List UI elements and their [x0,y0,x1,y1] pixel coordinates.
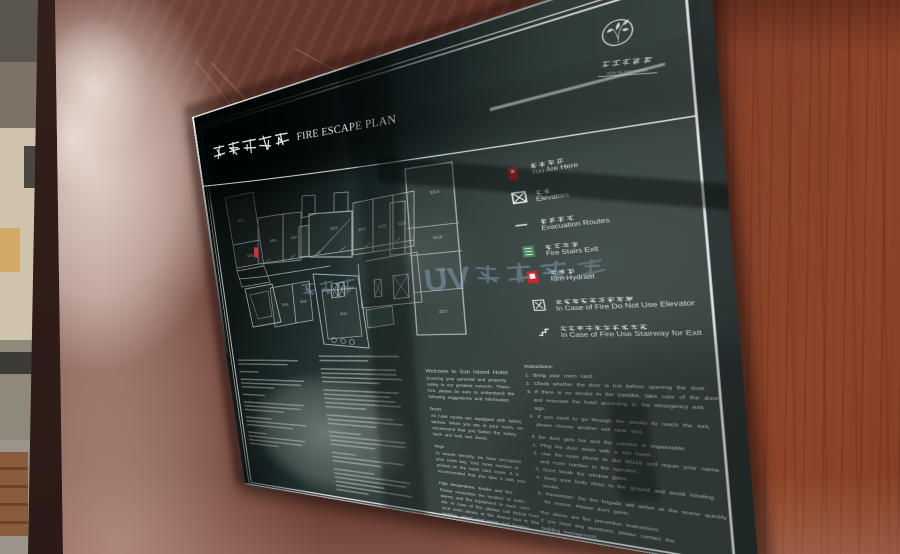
svg-text:FIRE ESCAPE PLAN: FIRE ESCAPE PLAN [296,112,396,142]
